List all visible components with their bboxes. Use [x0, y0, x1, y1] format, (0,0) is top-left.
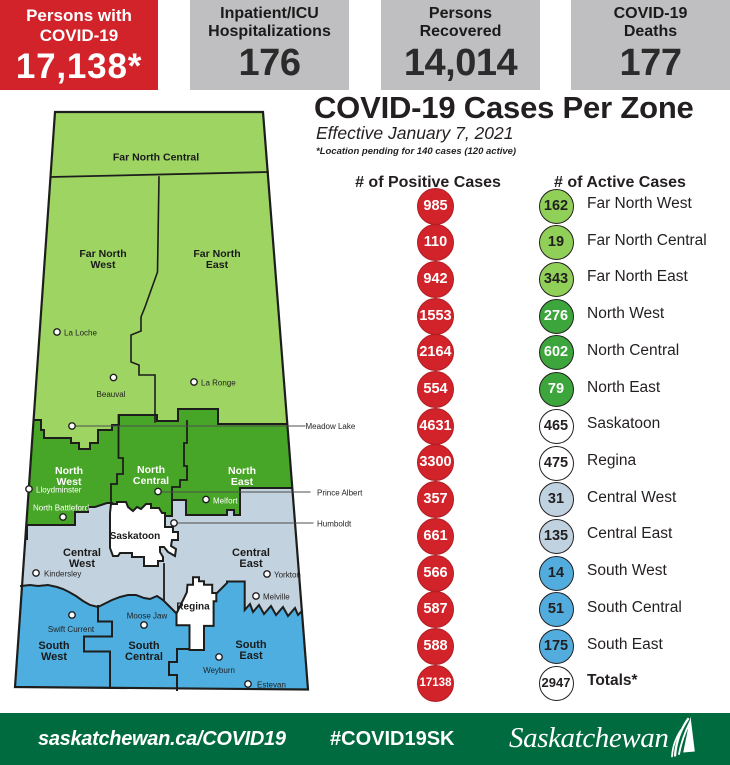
svg-text:Kindersley: Kindersley	[44, 570, 81, 579]
svg-text:La Loche: La Loche	[64, 329, 97, 338]
svg-text:Yorkton: Yorkton	[274, 571, 301, 580]
svg-text:Regina: Regina	[176, 602, 210, 613]
svg-text:Weyburn: Weyburn	[203, 666, 235, 675]
svg-text:Lloydminster: Lloydminster	[36, 486, 82, 495]
svg-text:Far North Central: Far North Central	[113, 152, 199, 164]
svg-text:Moose Jaw: Moose Jaw	[127, 612, 168, 621]
svg-text:Saskatoon: Saskatoon	[110, 531, 161, 542]
svg-text:Meadow Lake: Meadow Lake	[306, 422, 356, 431]
svg-text:East: East	[231, 476, 254, 488]
svg-text:West: West	[69, 558, 95, 570]
svg-text:East: East	[239, 558, 263, 570]
svg-text:Swift Current: Swift Current	[48, 625, 95, 634]
svg-text:Central: Central	[125, 651, 163, 663]
svg-text:La Ronge: La Ronge	[201, 379, 236, 388]
svg-text:Humboldt: Humboldt	[317, 520, 352, 529]
svg-text:North Battleford: North Battleford	[33, 504, 89, 513]
svg-text:West: West	[41, 651, 67, 663]
svg-text:Beauval: Beauval	[97, 390, 126, 399]
svg-text:Prince Albert: Prince Albert	[317, 489, 363, 498]
svg-text:Melville: Melville	[263, 593, 290, 602]
svg-text:Melfort: Melfort	[213, 497, 238, 506]
svg-text:West: West	[91, 259, 116, 271]
svg-text:East: East	[239, 650, 263, 662]
svg-text:Estevan: Estevan	[257, 681, 286, 690]
svg-text:East: East	[206, 259, 229, 271]
svg-text:Central: Central	[133, 475, 169, 487]
